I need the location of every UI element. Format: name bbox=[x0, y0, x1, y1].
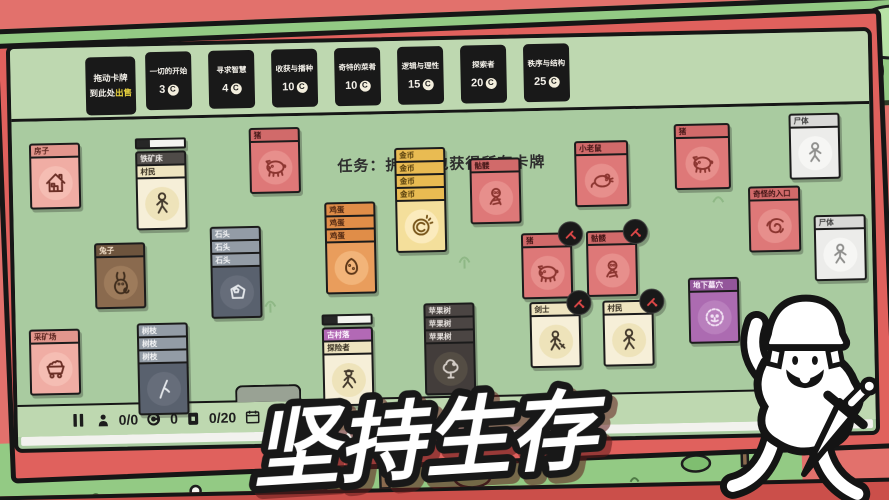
headline-text: 坚持生存 bbox=[249, 382, 610, 500]
dagger-icon bbox=[570, 294, 587, 311]
dagger-icon bbox=[627, 223, 644, 240]
card-header[interactable]: 鸡蛋 bbox=[325, 227, 376, 241]
card-header[interactable]: 铁矿床 bbox=[135, 150, 186, 164]
card-header[interactable]: 古村落 bbox=[322, 326, 373, 340]
skeleton-icon bbox=[480, 182, 511, 213]
card-pig-2[interactable]: 猪 bbox=[521, 232, 573, 299]
combat-badge bbox=[558, 221, 584, 247]
swordsman-icon bbox=[540, 326, 571, 357]
rabbit-icon bbox=[105, 267, 136, 298]
combat-badge bbox=[566, 290, 592, 316]
dagger-icon bbox=[562, 225, 579, 242]
card-corpse-1[interactable]: 尸体 bbox=[788, 113, 840, 180]
card-body[interactable] bbox=[789, 126, 841, 180]
card-body[interactable] bbox=[29, 342, 81, 396]
card-header[interactable]: 金币 bbox=[394, 160, 445, 174]
apple-tree-icon bbox=[435, 353, 466, 384]
card-coin-stack[interactable]: 金币金币金币金币 bbox=[394, 147, 447, 253]
card-header[interactable]: 鸡蛋 bbox=[324, 214, 375, 228]
card-body[interactable] bbox=[530, 314, 582, 368]
card-header[interactable]: 苹果树 bbox=[424, 315, 475, 329]
corpse-icon bbox=[825, 239, 856, 270]
card-header[interactable]: 鸡蛋 bbox=[324, 201, 375, 215]
card-header[interactable]: 村民 bbox=[135, 163, 186, 177]
card-body[interactable] bbox=[574, 153, 629, 207]
card-body[interactable] bbox=[674, 136, 731, 190]
progress-fill bbox=[137, 140, 150, 147]
card-header[interactable]: 猪 bbox=[249, 127, 300, 141]
card-header[interactable]: 石头 bbox=[210, 252, 261, 266]
card-villager-2[interactable]: 村民 bbox=[602, 300, 654, 367]
skeleton-icon bbox=[597, 255, 628, 286]
card-header[interactable]: 苹果树 bbox=[424, 328, 475, 342]
portal-icon bbox=[759, 210, 790, 241]
card-body[interactable] bbox=[29, 156, 81, 210]
card-stone-stack[interactable]: 石头石头石头 bbox=[210, 226, 263, 319]
card-strange-portal[interactable]: 奇怪的入口 bbox=[748, 186, 801, 253]
card-rat[interactable]: 小老鼠 bbox=[574, 140, 629, 207]
card-header[interactable]: 苹果树 bbox=[423, 302, 474, 316]
card-header[interactable]: 探险者 bbox=[322, 339, 373, 353]
card-header[interactable]: 骷髅 bbox=[469, 157, 520, 171]
combat-badge bbox=[623, 219, 649, 245]
card-header[interactable]: 地下墓穴 bbox=[688, 277, 739, 291]
card-header[interactable]: 采矿场 bbox=[29, 329, 80, 343]
card-header[interactable]: 尸体 bbox=[814, 214, 866, 228]
card-pig-1[interactable]: 猪 bbox=[249, 127, 301, 194]
card-body[interactable] bbox=[136, 176, 188, 230]
card-header[interactable]: 兔子 bbox=[94, 242, 145, 256]
coin-icon bbox=[406, 211, 437, 242]
card-swordsman[interactable]: 剑士 bbox=[529, 301, 581, 368]
card-iron-deposit[interactable]: 铁矿床村民 bbox=[135, 137, 188, 230]
house-icon bbox=[40, 167, 71, 198]
pig-icon bbox=[260, 152, 291, 183]
card-header[interactable]: 金币 bbox=[395, 173, 446, 187]
card-branch-stack[interactable]: 树枝树枝树枝 bbox=[137, 322, 190, 415]
egg-icon bbox=[336, 252, 367, 283]
card-skeleton-2[interactable]: 骷髅 bbox=[586, 230, 638, 297]
minecart-icon bbox=[40, 353, 71, 384]
villager-icon bbox=[613, 324, 644, 355]
corpse-icon bbox=[799, 137, 830, 168]
card-body[interactable] bbox=[748, 199, 801, 253]
card-skeleton-1[interactable]: 骷髅 bbox=[469, 157, 521, 224]
progress-fill bbox=[324, 316, 338, 323]
card-body[interactable] bbox=[586, 243, 638, 297]
card-body[interactable] bbox=[395, 199, 447, 253]
card-body[interactable] bbox=[94, 255, 146, 309]
card-body[interactable] bbox=[249, 140, 301, 194]
card-header[interactable]: 石头 bbox=[210, 226, 261, 240]
card-house[interactable]: 房子 bbox=[29, 143, 81, 210]
rat-icon bbox=[586, 165, 617, 196]
card-header[interactable]: 奇怪的入口 bbox=[748, 186, 800, 200]
card-pig-3[interactable]: 猪 bbox=[674, 123, 731, 190]
card-body[interactable] bbox=[210, 265, 262, 319]
combat-badge bbox=[639, 288, 665, 314]
card-body[interactable] bbox=[603, 313, 655, 367]
card-header[interactable]: 树枝 bbox=[137, 348, 188, 362]
card-header[interactable]: 金币 bbox=[395, 186, 446, 200]
card-body[interactable] bbox=[521, 245, 573, 299]
card-egg-stack[interactable]: 鸡蛋鸡蛋鸡蛋 bbox=[324, 201, 377, 294]
branch-icon bbox=[148, 373, 179, 404]
card-body[interactable] bbox=[325, 240, 377, 294]
card-header[interactable]: 尸体 bbox=[788, 113, 839, 127]
pig-icon bbox=[532, 257, 563, 288]
card-header[interactable]: 树枝 bbox=[137, 322, 188, 336]
card-header[interactable]: 猪 bbox=[674, 123, 730, 137]
card-header[interactable]: 树枝 bbox=[137, 335, 188, 349]
card-header[interactable]: 石头 bbox=[210, 239, 261, 253]
pig-icon bbox=[687, 148, 718, 179]
card-body[interactable] bbox=[814, 227, 867, 281]
stone-icon bbox=[221, 277, 252, 308]
swordsman-doodle bbox=[717, 290, 889, 500]
card-corpse-2[interactable]: 尸体 bbox=[814, 214, 867, 281]
progress-bar bbox=[322, 313, 373, 325]
dagger-icon bbox=[643, 292, 660, 309]
card-rabbit[interactable]: 兔子 bbox=[94, 242, 146, 309]
progress-bar bbox=[135, 137, 186, 149]
swordsman-doodle-drawing bbox=[717, 290, 889, 500]
card-header[interactable]: 小老鼠 bbox=[574, 140, 628, 154]
card-body[interactable] bbox=[137, 361, 189, 415]
card-mine[interactable]: 采矿场 bbox=[29, 329, 81, 396]
villager-icon bbox=[146, 188, 177, 219]
card-header[interactable]: 金币 bbox=[394, 147, 445, 161]
card-body[interactable] bbox=[470, 170, 522, 224]
card-header[interactable]: 房子 bbox=[29, 143, 80, 157]
